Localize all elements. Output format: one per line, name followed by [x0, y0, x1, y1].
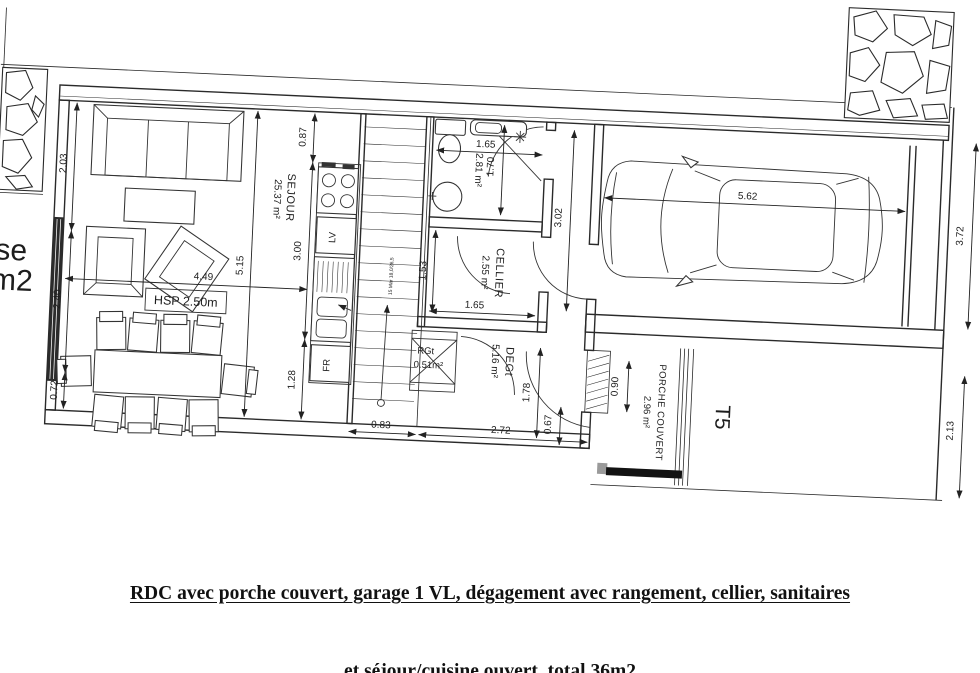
fridge: FR: [310, 345, 351, 383]
garage-door: [902, 146, 916, 327]
dim-5-15: 5.15: [235, 255, 247, 275]
dim-2-40: 2.40: [52, 289, 64, 309]
svg-text:DEGt: DEGt: [502, 347, 515, 377]
svg-text:0.51m²: 0.51m²: [413, 359, 443, 371]
svg-text:2.96 m²: 2.96 m²: [640, 396, 652, 429]
dim-porch-w: 0.90: [609, 376, 621, 396]
svg-text:25.37 m²: 25.37 m²: [270, 179, 283, 220]
svg-text:HSP 2.50m: HSP 2.50m: [154, 293, 218, 310]
svg-text:2.55 m²: 2.55 m²: [478, 255, 491, 290]
svg-text:PORCHE COUVERT: PORCHE COUVERT: [653, 364, 668, 461]
dim-3-00: 3.00: [292, 241, 304, 261]
site-partial-text-2: m2: [0, 263, 33, 298]
toilet-icon: [434, 119, 466, 163]
stair-note: 15 Mar 18,0/26,5: [388, 257, 396, 295]
caption-line-2: et séjour/cuisine ouvert total 36m2: [0, 659, 980, 673]
svg-text:5.16 m²: 5.16 m²: [488, 344, 501, 379]
dim-stair-w: 0.83: [371, 419, 391, 431]
unit-type-label: T5: [710, 405, 734, 431]
caption: RDC avec porche couvert, garage 1 VL, dé…: [0, 529, 980, 673]
bathroom-area: 2.81 m²: [472, 153, 485, 188]
dining-set: [53, 308, 260, 439]
dim-hall-w: 2.72: [491, 425, 511, 437]
dim-cellier-w: 1.65: [464, 300, 484, 312]
svg-text:SEJOUR: SEJOUR: [283, 173, 297, 222]
coffee-table: [124, 188, 195, 224]
dim-garage-door: 3.72: [955, 226, 967, 246]
dim-entry-h: 1.78: [521, 382, 533, 402]
entry-threshold-hatch: [585, 350, 611, 413]
dim-bath-h: 1.70: [485, 156, 497, 176]
armchair-left: [84, 226, 146, 297]
stone-wall-right: [844, 8, 954, 123]
dining-table: [93, 350, 222, 398]
svg-text:LV: LV: [327, 231, 339, 243]
hob-icon: [316, 162, 358, 215]
stair-direction-arrow: [381, 305, 387, 399]
dim-0-87: 0.87: [297, 127, 309, 147]
sejour-label: SEJOUR 25.37 m²: [270, 173, 297, 222]
degagement: DEGt 5.16 m²: [488, 344, 516, 380]
dim-cellier-h: 1.53: [418, 260, 430, 280]
sink-unit-icon: [311, 257, 355, 343]
door-arcs: [449, 123, 603, 427]
site-partial-text-1: se: [0, 233, 28, 267]
porch-edge-rails: [674, 348, 693, 485]
dim-entry-step: 0.67: [543, 414, 555, 434]
svg-text:FR: FR: [321, 359, 333, 372]
bathroom: 2.81 m²: [428, 118, 527, 215]
porch-step-bar: [597, 463, 682, 479]
storage-closet: RGt 0.51m²: [410, 330, 458, 392]
svg-text:CELLIER: CELLIER: [492, 248, 506, 299]
stone-wall-left: [0, 67, 48, 191]
dim-4-49: 4.49: [193, 271, 213, 283]
kitchen-block: LV FR: [309, 162, 361, 385]
car-top-view-icon: [599, 153, 886, 296]
floor-plan-page: se m2: [0, 0, 980, 673]
dim-garage-h: 3.02: [553, 207, 565, 227]
porch-label: PORCHE COUVERT 2.96 m²: [639, 363, 668, 461]
dim-0-72: 0.72: [49, 380, 61, 400]
dim-1-28: 1.28: [286, 369, 298, 389]
dim-garage-l: 5.62: [738, 191, 758, 203]
floor-plan-canvas: se m2: [0, 0, 980, 525]
svg-text:RGt: RGt: [417, 345, 435, 357]
sofa: [91, 105, 244, 182]
dishwasher: LV: [316, 217, 357, 255]
caption-line-1: RDC avec porche couvert, garage 1 VL, dé…: [0, 581, 980, 607]
dim-bath-w: 1.65: [476, 139, 496, 151]
cellier: CELLIER 2.55 m²: [478, 247, 506, 298]
dim-2-03: 2.03: [58, 153, 70, 173]
dim-terrace: 2.13: [945, 420, 957, 440]
